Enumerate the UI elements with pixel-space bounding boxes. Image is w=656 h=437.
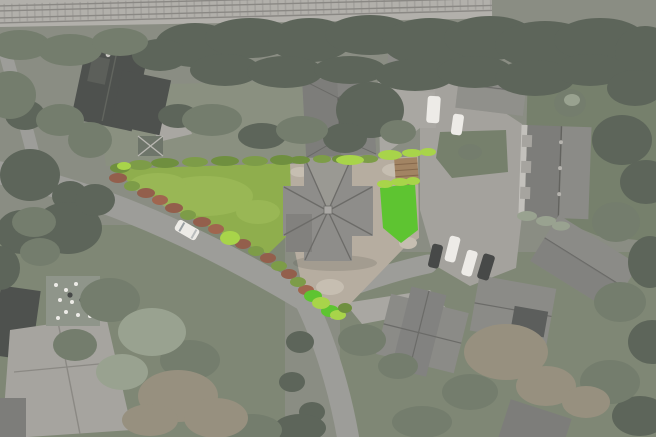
border-bright-bush — [220, 231, 240, 245]
terrace-e — [518, 125, 591, 219]
plot-house-chimney — [324, 206, 332, 214]
garden-pavilion — [138, 136, 163, 156]
terrace-dormer-1 — [522, 135, 532, 147]
terrace-east-slope — [558, 126, 591, 219]
aerial-photo — [0, 0, 656, 437]
terrace-dormer-2 — [521, 161, 531, 173]
aerial-photo-canvas — [0, 0, 656, 437]
white-van — [426, 96, 441, 124]
plot-house-sw-wing — [286, 214, 312, 252]
terrace-dormer-3 — [520, 187, 530, 199]
sw-small-roof — [0, 398, 26, 437]
tip-hedge-green — [338, 303, 352, 313]
patio-table-1 — [67, 292, 72, 297]
